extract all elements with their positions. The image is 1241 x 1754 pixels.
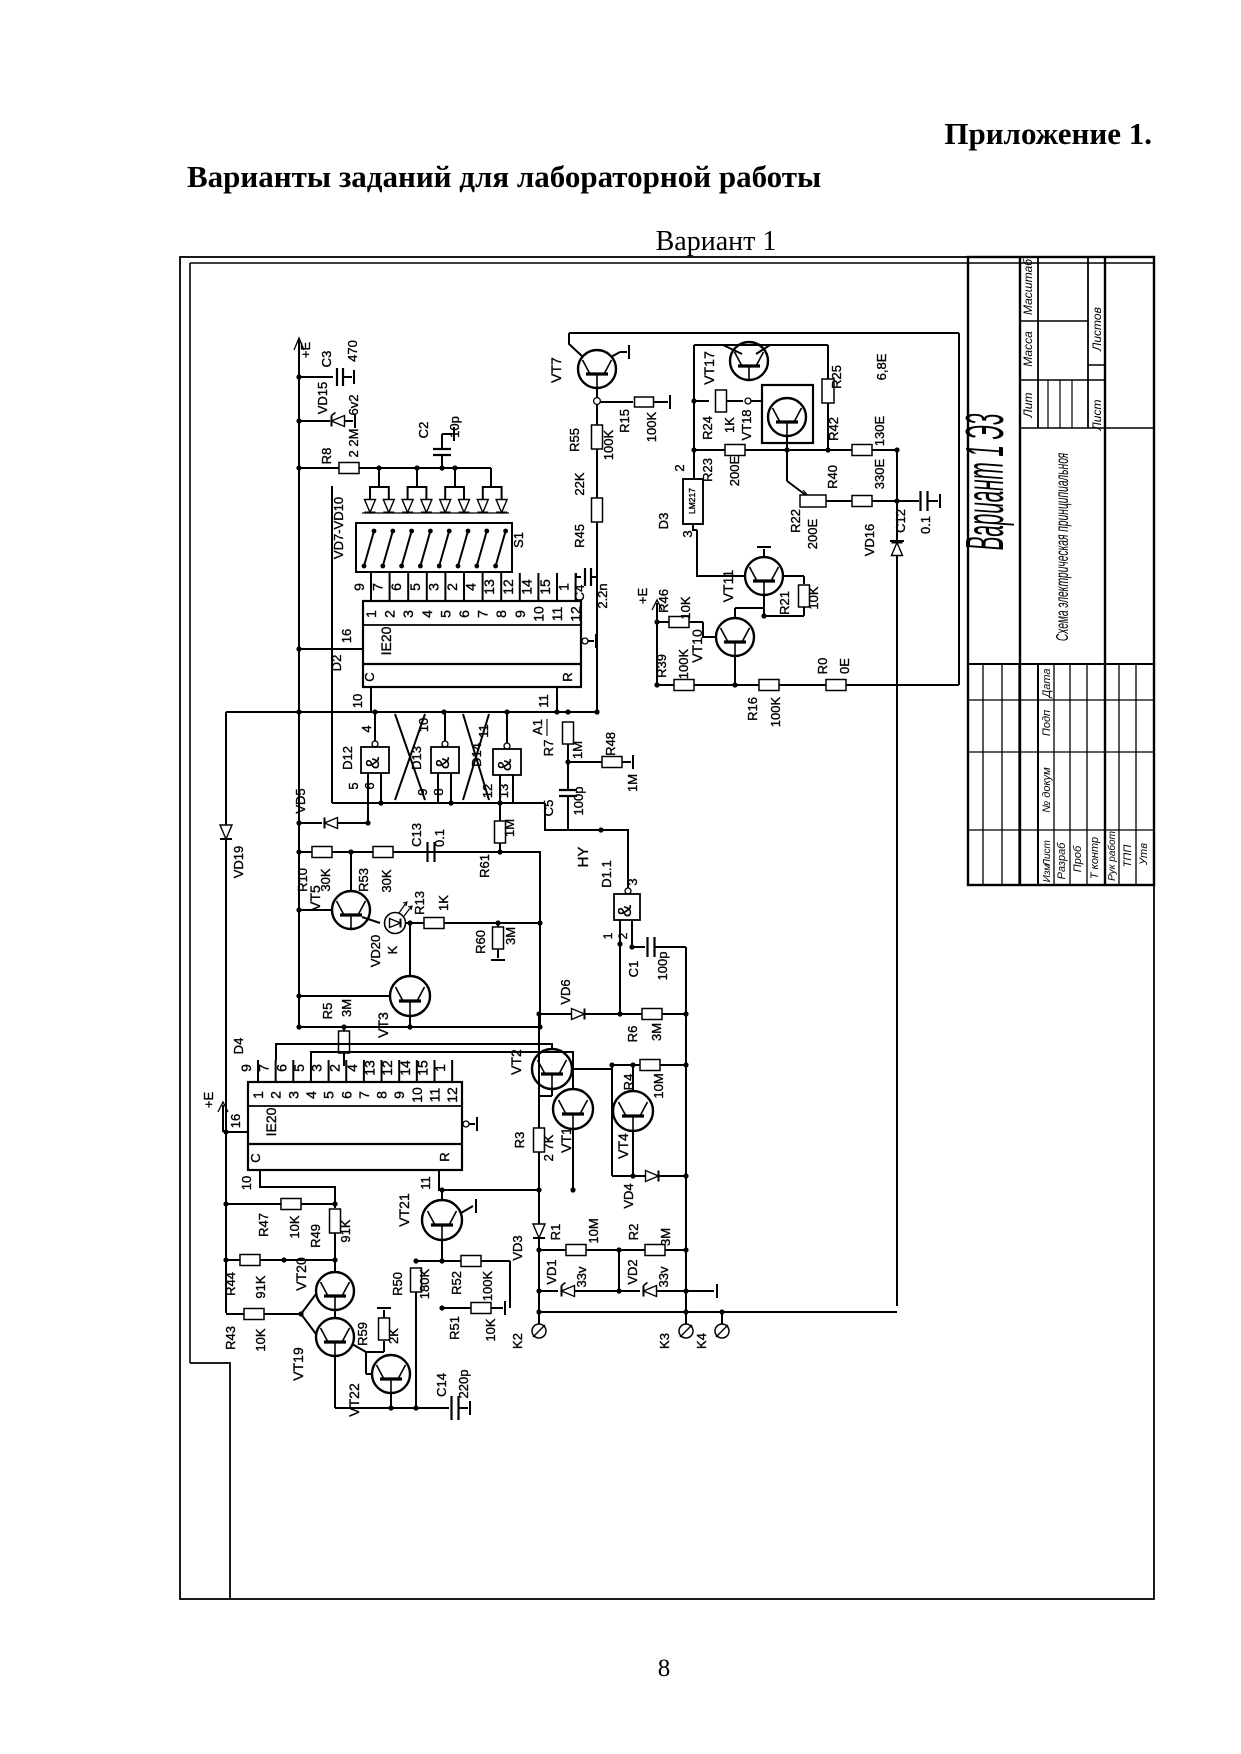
svg-text:0.1: 0.1 bbox=[918, 516, 933, 534]
svg-text:330E: 330E bbox=[872, 458, 887, 489]
svg-text:R45: R45 bbox=[572, 524, 587, 548]
svg-text:6: 6 bbox=[388, 583, 404, 591]
svg-text:R53: R53 bbox=[356, 868, 371, 892]
svg-text:C: C bbox=[362, 672, 377, 681]
svg-text:0E: 0E bbox=[837, 658, 852, 674]
svg-text:2: 2 bbox=[616, 932, 630, 939]
svg-text:VT21: VT21 bbox=[396, 1193, 412, 1227]
svg-text:100p: 100p bbox=[655, 952, 670, 981]
svg-text:10: 10 bbox=[530, 606, 546, 622]
svg-text:Утв: Утв bbox=[1138, 843, 1150, 866]
svg-text:R21: R21 bbox=[777, 591, 792, 615]
svg-text:VT18: VT18 bbox=[739, 409, 754, 440]
svg-text:10M: 10M bbox=[651, 1073, 666, 1098]
svg-text:33v: 33v bbox=[574, 1266, 589, 1287]
svg-text:470: 470 bbox=[345, 340, 360, 362]
svg-text:Дата: Дата bbox=[1041, 668, 1053, 699]
svg-text:6: 6 bbox=[338, 1091, 354, 1099]
svg-text:VD4: VD4 bbox=[621, 1183, 636, 1208]
svg-text:8: 8 bbox=[658, 1655, 671, 1682]
svg-text:R47: R47 bbox=[256, 1213, 271, 1237]
svg-text:R: R bbox=[560, 672, 575, 681]
svg-text:C4: C4 bbox=[572, 585, 587, 602]
svg-text:3: 3 bbox=[285, 1091, 301, 1099]
svg-text:11: 11 bbox=[418, 1176, 433, 1190]
svg-text:S1: S1 bbox=[511, 532, 526, 548]
svg-text:100K: 100K bbox=[676, 648, 691, 679]
svg-text:R42: R42 bbox=[826, 417, 841, 441]
svg-text:Вариант 1: Вариант 1 bbox=[656, 226, 777, 257]
svg-text:10p: 10p bbox=[447, 416, 462, 438]
svg-text:&: & bbox=[615, 905, 635, 917]
svg-text:R39: R39 bbox=[654, 654, 669, 678]
svg-text:VT11: VT11 bbox=[720, 570, 736, 603]
svg-text:Вариант 1 Э3: Вариант 1 Э3 bbox=[954, 413, 1015, 550]
svg-text:VD7-VD10: VD7-VD10 bbox=[331, 497, 346, 559]
svg-text:LM217: LM217 bbox=[687, 488, 697, 514]
svg-text:4: 4 bbox=[359, 725, 374, 732]
svg-text:VD15: VD15 bbox=[315, 382, 330, 415]
svg-text:R25: R25 bbox=[829, 365, 844, 389]
svg-text:4: 4 bbox=[344, 1064, 360, 1072]
svg-text:Рук работ: Рук работ bbox=[1106, 831, 1118, 881]
svg-text:33v: 33v bbox=[656, 1266, 671, 1287]
svg-text:2: 2 bbox=[382, 610, 398, 618]
svg-text:11: 11 bbox=[549, 607, 565, 622]
svg-text:R5: R5 bbox=[320, 1003, 335, 1020]
svg-text:10M: 10M bbox=[586, 1218, 601, 1243]
svg-text:D3: D3 bbox=[656, 513, 671, 530]
svg-text:R60: R60 bbox=[473, 930, 488, 954]
svg-text:180K: 180K bbox=[417, 1268, 432, 1299]
svg-text:10K: 10K bbox=[483, 1318, 498, 1341]
svg-text:130E: 130E bbox=[872, 415, 887, 446]
svg-text:5: 5 bbox=[407, 583, 423, 591]
svg-text:VT19: VT19 bbox=[290, 1347, 306, 1381]
svg-text:R22: R22 bbox=[788, 509, 803, 533]
svg-text:5: 5 bbox=[437, 610, 453, 618]
svg-text:2: 2 bbox=[268, 1091, 284, 1099]
svg-text:№ докум: № докум bbox=[1041, 767, 1053, 813]
svg-text:2K: 2K bbox=[386, 1328, 401, 1344]
svg-text:K: K bbox=[385, 945, 400, 954]
svg-text:1M: 1M bbox=[625, 774, 640, 792]
svg-text:2: 2 bbox=[444, 583, 460, 591]
svg-text:R61: R61 bbox=[477, 854, 492, 878]
svg-text:9: 9 bbox=[238, 1064, 254, 1072]
svg-text:3M: 3M bbox=[649, 1023, 664, 1041]
svg-text:16: 16 bbox=[228, 1114, 243, 1128]
svg-text:VD6: VD6 bbox=[558, 979, 573, 1004]
svg-text:10K: 10K bbox=[253, 1328, 268, 1351]
svg-text:1: 1 bbox=[363, 610, 379, 618]
svg-text:7: 7 bbox=[356, 1091, 372, 1099]
svg-text:R55: R55 bbox=[567, 428, 582, 452]
svg-text:11: 11 bbox=[427, 1088, 443, 1103]
svg-text:1K: 1K bbox=[436, 895, 451, 911]
svg-text:VT17: VT17 bbox=[701, 351, 717, 385]
svg-text:Подп: Подп bbox=[1041, 710, 1053, 736]
svg-text:HY: HY bbox=[575, 847, 592, 868]
svg-text:22K: 22K bbox=[572, 472, 587, 495]
svg-text:6: 6 bbox=[362, 782, 377, 789]
svg-text:R46: R46 bbox=[656, 589, 671, 613]
svg-text:10: 10 bbox=[409, 1087, 425, 1103]
svg-text:5: 5 bbox=[346, 782, 361, 789]
svg-text:13: 13 bbox=[362, 1060, 378, 1076]
svg-text:11: 11 bbox=[536, 694, 551, 708]
svg-text:Лит: Лит bbox=[1021, 393, 1035, 419]
svg-text:Варианты заданий для лаборатор: Варианты заданий для лабораторной работы bbox=[187, 159, 821, 194]
svg-text:C: C bbox=[248, 1153, 263, 1162]
svg-text:C14: C14 bbox=[434, 1373, 449, 1397]
svg-text:Проб: Проб bbox=[1072, 845, 1084, 872]
svg-text:3: 3 bbox=[400, 610, 416, 618]
svg-text:IE20: IE20 bbox=[263, 1107, 279, 1136]
svg-text:2 7K: 2 7K bbox=[541, 1134, 556, 1161]
svg-text:9: 9 bbox=[351, 583, 367, 591]
svg-text:100K: 100K bbox=[644, 411, 659, 442]
svg-text:C2: C2 bbox=[416, 422, 431, 439]
svg-text:3: 3 bbox=[625, 878, 640, 885]
svg-text:Разраб: Разраб bbox=[1056, 842, 1068, 880]
svg-text:VT1: VT1 bbox=[558, 1127, 574, 1153]
svg-text:15: 15 bbox=[537, 579, 553, 595]
svg-text:3M: 3M bbox=[658, 1228, 673, 1246]
svg-text:100p: 100p bbox=[571, 787, 586, 816]
svg-text:R59: R59 bbox=[355, 1322, 370, 1346]
svg-text:5: 5 bbox=[291, 1064, 307, 1072]
svg-text:10: 10 bbox=[239, 1176, 254, 1190]
svg-text:R16: R16 bbox=[745, 697, 760, 721]
svg-text:1: 1 bbox=[250, 1091, 266, 1099]
svg-text:Лист: Лист bbox=[1042, 840, 1053, 867]
svg-text:R24: R24 bbox=[700, 416, 715, 440]
svg-text:VT7: VT7 bbox=[548, 357, 564, 383]
svg-text:14: 14 bbox=[397, 1060, 413, 1076]
svg-text:R: R bbox=[437, 1152, 452, 1161]
svg-text:0.1: 0.1 bbox=[432, 829, 447, 847]
svg-text:R13: R13 bbox=[412, 891, 427, 915]
svg-text:K3: K3 bbox=[657, 1333, 672, 1349]
svg-text:1: 1 bbox=[432, 1064, 448, 1072]
svg-text:8: 8 bbox=[493, 610, 509, 618]
svg-text:15: 15 bbox=[415, 1060, 431, 1076]
svg-text:D1.1: D1.1 bbox=[599, 860, 614, 887]
svg-text:Масса: Масса bbox=[1021, 331, 1035, 367]
svg-text:16: 16 bbox=[339, 629, 354, 643]
svg-text:VD2: VD2 bbox=[625, 1259, 640, 1284]
svg-text:R51: R51 bbox=[447, 1316, 462, 1340]
svg-text:R0: R0 bbox=[815, 658, 830, 675]
svg-text:30K: 30K bbox=[379, 869, 394, 892]
svg-text:1: 1 bbox=[601, 932, 615, 939]
svg-text:13: 13 bbox=[496, 784, 511, 798]
svg-text:1K: 1K bbox=[722, 417, 737, 433]
svg-text:100K: 100K bbox=[480, 1270, 495, 1301]
svg-text:8: 8 bbox=[374, 1091, 390, 1099]
svg-text:100K: 100K bbox=[768, 696, 783, 727]
svg-text:&: & bbox=[433, 757, 453, 769]
svg-text:+E: +E bbox=[201, 1092, 216, 1109]
svg-text:Листов: Листов bbox=[1090, 307, 1104, 352]
svg-text:+E: +E bbox=[635, 588, 650, 605]
svg-text:R43: R43 bbox=[223, 1326, 238, 1350]
svg-text:R2: R2 bbox=[626, 1224, 641, 1241]
svg-text:91K: 91K bbox=[338, 1219, 353, 1242]
svg-text:R8: R8 bbox=[319, 448, 334, 465]
svg-text:3: 3 bbox=[425, 583, 441, 591]
svg-text:+E: +E bbox=[298, 342, 313, 359]
svg-text:C1: C1 bbox=[626, 961, 641, 978]
svg-text:VD19: VD19 bbox=[231, 846, 246, 879]
svg-text:R50: R50 bbox=[390, 1272, 405, 1296]
svg-text:13: 13 bbox=[481, 579, 497, 595]
svg-text:10K: 10K bbox=[678, 596, 693, 619]
svg-text:R6: R6 bbox=[625, 1026, 640, 1043]
svg-text:2 2M: 2 2M bbox=[346, 429, 361, 458]
svg-text:Изм: Изм bbox=[1042, 864, 1053, 883]
svg-text:D12: D12 bbox=[340, 746, 355, 770]
svg-text:Схема электрическая принципиал: Схема электрическая принципиальноя bbox=[1053, 453, 1073, 642]
svg-text:9: 9 bbox=[391, 1091, 407, 1099]
svg-text:C12: C12 bbox=[893, 509, 908, 533]
svg-text:VD1: VD1 bbox=[544, 1259, 559, 1284]
svg-text:6,8E: 6,8E bbox=[874, 353, 889, 380]
svg-text:200E: 200E bbox=[805, 518, 820, 549]
svg-text:3M: 3M bbox=[503, 927, 518, 945]
svg-text:VD16: VD16 bbox=[862, 524, 877, 557]
svg-text:A1: A1 bbox=[530, 719, 545, 735]
svg-text:&: & bbox=[363, 757, 383, 769]
svg-text:K4: K4 bbox=[694, 1333, 709, 1349]
svg-text:R1: R1 bbox=[548, 1224, 563, 1241]
svg-text:9: 9 bbox=[512, 610, 528, 618]
svg-text:91K: 91K bbox=[253, 1275, 268, 1298]
svg-text:D4: D4 bbox=[231, 1038, 246, 1055]
svg-text:VD20: VD20 bbox=[368, 935, 383, 968]
svg-text:R52: R52 bbox=[449, 1271, 464, 1295]
svg-text:R49: R49 bbox=[308, 1224, 323, 1248]
svg-text:Приложение 1.: Приложение 1. bbox=[944, 116, 1152, 151]
svg-text:VT3: VT3 bbox=[375, 1012, 391, 1038]
svg-text:R48: R48 bbox=[603, 732, 618, 756]
svg-text:VD5: VD5 bbox=[293, 788, 308, 813]
svg-text:4: 4 bbox=[463, 583, 479, 591]
svg-text:VT22: VT22 bbox=[346, 1383, 362, 1417]
svg-text:12: 12 bbox=[500, 579, 516, 595]
svg-text:1: 1 bbox=[556, 583, 572, 591]
svg-text:R15: R15 bbox=[617, 409, 632, 433]
svg-text:1M: 1M bbox=[570, 741, 585, 759]
svg-text:7: 7 bbox=[370, 583, 386, 591]
svg-text:VT20: VT20 bbox=[293, 1257, 309, 1291]
svg-text:C13: C13 bbox=[409, 823, 424, 847]
svg-text:Т контр: Т контр bbox=[1089, 837, 1101, 879]
svg-text:IE20: IE20 bbox=[378, 626, 394, 655]
svg-text:12: 12 bbox=[379, 1060, 395, 1076]
svg-text:12: 12 bbox=[568, 606, 584, 622]
svg-text:R40: R40 bbox=[825, 465, 840, 489]
svg-text:5: 5 bbox=[321, 1091, 337, 1099]
svg-text:Лист: Лист bbox=[1090, 400, 1104, 432]
svg-text:&: & bbox=[495, 759, 515, 771]
svg-text:VD3: VD3 bbox=[510, 1235, 525, 1260]
svg-text:7: 7 bbox=[256, 1064, 272, 1072]
svg-text:3M: 3M bbox=[339, 999, 354, 1017]
svg-text:10K: 10K bbox=[287, 1215, 302, 1238]
svg-text:6v2: 6v2 bbox=[346, 395, 361, 416]
svg-text:C3: C3 bbox=[319, 351, 334, 368]
svg-text:10K: 10K bbox=[806, 586, 821, 609]
svg-text:100K: 100K bbox=[601, 429, 616, 460]
svg-text:220p: 220p bbox=[456, 1370, 471, 1399]
svg-text:R7: R7 bbox=[541, 740, 556, 757]
svg-text:4: 4 bbox=[419, 610, 435, 618]
svg-text:2: 2 bbox=[672, 464, 687, 471]
svg-text:7: 7 bbox=[475, 610, 491, 618]
svg-text:2: 2 bbox=[326, 1064, 342, 1072]
svg-text:VT4: VT4 bbox=[615, 1133, 631, 1159]
svg-text:6: 6 bbox=[273, 1064, 289, 1072]
svg-text:Масштаб: Масштаб bbox=[1021, 258, 1035, 315]
svg-text:1M: 1M bbox=[502, 819, 517, 837]
svg-text:VT5: VT5 bbox=[307, 885, 323, 911]
svg-text:10: 10 bbox=[350, 694, 365, 708]
svg-text:K2: K2 bbox=[510, 1333, 525, 1349]
svg-text:R3: R3 bbox=[512, 1132, 527, 1149]
svg-text:6: 6 bbox=[456, 610, 472, 618]
svg-text:14: 14 bbox=[518, 579, 534, 595]
svg-text:R44: R44 bbox=[223, 1272, 238, 1296]
svg-text:ТПП: ТПП bbox=[1122, 845, 1134, 868]
svg-text:200E: 200E bbox=[727, 455, 742, 486]
svg-text:12: 12 bbox=[444, 1087, 460, 1103]
svg-text:3: 3 bbox=[309, 1064, 325, 1072]
svg-text:3: 3 bbox=[680, 530, 695, 537]
svg-text:4: 4 bbox=[303, 1091, 319, 1099]
